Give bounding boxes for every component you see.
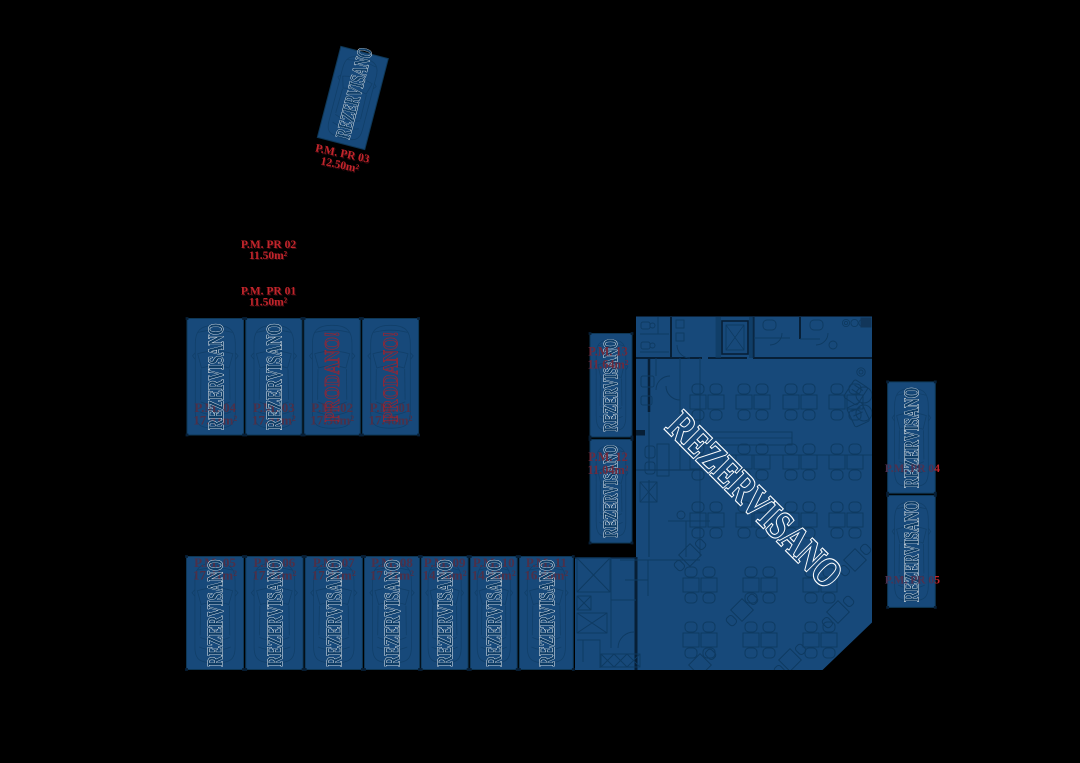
svg-text:P.M. PR 0: P.M. PR 0: [885, 575, 935, 587]
svg-text:11.64m²: 11.64m²: [588, 358, 629, 372]
svg-text:REZERVISANO: REZERVISANO: [203, 324, 228, 431]
svg-text:REZERVISANO: REZERVISANO: [262, 560, 287, 667]
svg-text:REZERVISANO: REZERVISANO: [899, 501, 923, 602]
svg-text:REZERVISANO: REZERVISANO: [203, 560, 228, 667]
svg-text:11.50m²: 11.50m²: [249, 296, 288, 308]
svg-text:P.M. PR 0: P.M. PR 0: [885, 463, 935, 475]
svg-text:11.50m²: 11.50m²: [249, 250, 288, 262]
svg-text:4: 4: [934, 463, 940, 475]
svg-text:11.04m²: 11.04m²: [588, 463, 629, 477]
svg-text:PRODANO!: PRODANO!: [379, 332, 403, 423]
svg-text:REZERVISANO: REZERVISANO: [380, 560, 405, 667]
svg-text:PRODANO!: PRODANO!: [320, 332, 344, 423]
svg-text:REZERVISANO: REZERVISANO: [481, 560, 506, 667]
svg-text:P.M. 12: P.M. 12: [588, 450, 628, 464]
svg-text:REZERVISANO: REZERVISANO: [321, 560, 346, 667]
svg-text:REZERVISANO: REZERVISANO: [432, 560, 457, 667]
svg-text:P.M. 13: P.M. 13: [588, 345, 628, 359]
svg-text:REZERVISANO: REZERVISANO: [261, 324, 286, 431]
svg-text:5: 5: [934, 575, 940, 587]
svg-text:REZERVISANO: REZERVISANO: [534, 560, 559, 667]
